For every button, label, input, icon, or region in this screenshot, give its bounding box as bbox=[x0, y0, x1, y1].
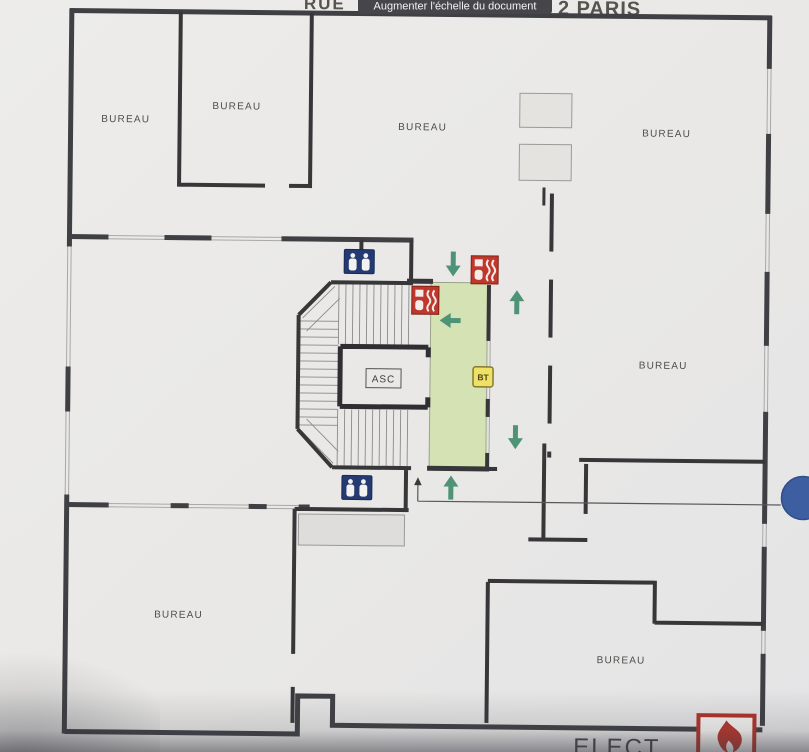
bt-label: BT bbox=[477, 372, 489, 382]
dashed-partition bbox=[549, 194, 552, 458]
bt-electrical-icon: BT bbox=[473, 367, 493, 387]
wc-icon bbox=[342, 475, 372, 499]
fire-extinguisher-icon bbox=[412, 286, 439, 314]
elevator-label: ASC bbox=[372, 374, 396, 385]
paper-background bbox=[0, 0, 809, 752]
room-label-bureau-top-right: BUREAU bbox=[642, 129, 691, 141]
corner-shadow bbox=[0, 652, 160, 752]
room-label-bureau-bottom-left: BUREAU bbox=[154, 609, 203, 621]
room-label-bureau-top-left: BUREAU bbox=[101, 114, 150, 126]
room-label-bureau-bottom-right: BUREAU bbox=[597, 655, 646, 667]
floor-plan-photo: RUE 2 PARIS bbox=[0, 0, 809, 752]
wc-icon bbox=[344, 249, 374, 273]
room-label-bureau-top-center: BUREAU bbox=[398, 122, 447, 134]
tooltip-label: Augmenter l'échelle du document bbox=[374, 1, 537, 13]
tooltip: Augmenter l'échelle du document bbox=[358, 0, 552, 14]
screenshot-root: RUE 2 PARIS bbox=[0, 0, 809, 752]
fire-extinguisher-icon bbox=[471, 256, 498, 284]
room-label-bureau-mid-right: BUREAU bbox=[639, 360, 688, 372]
room-label-bureau-top-mid: BUREAU bbox=[212, 101, 261, 113]
